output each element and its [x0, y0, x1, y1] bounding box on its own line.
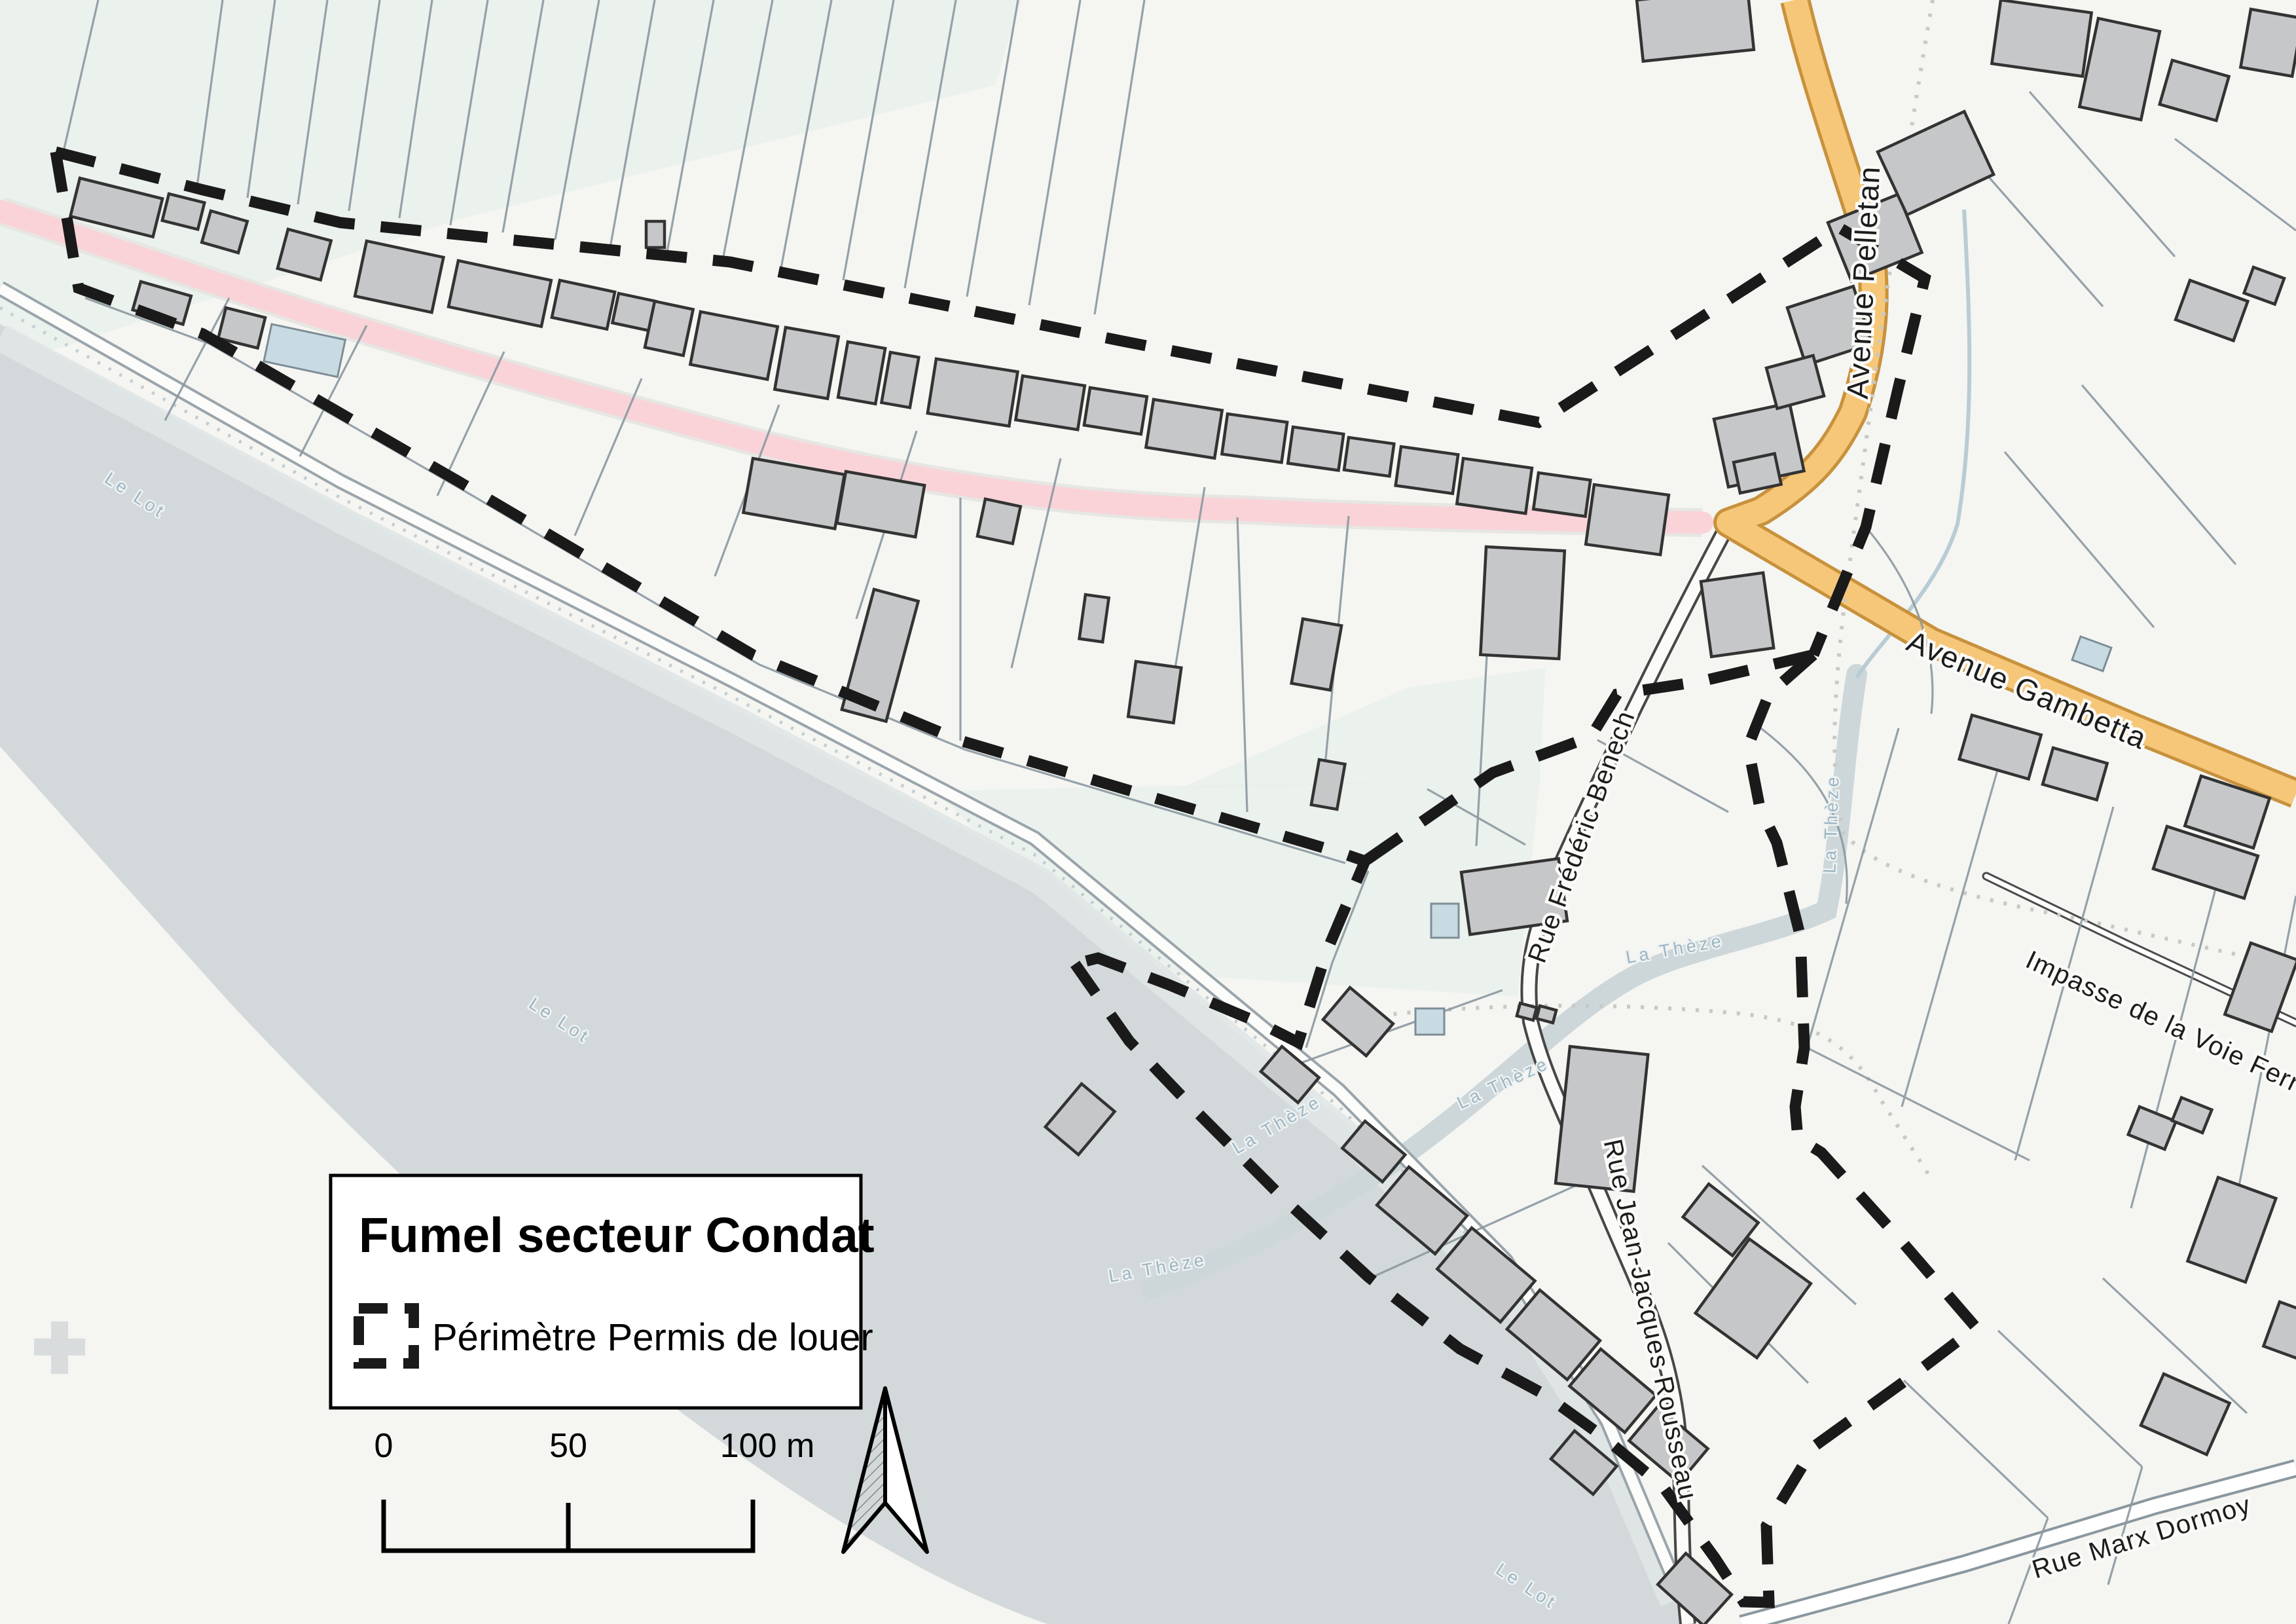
stream-label: La Thèze: [1819, 773, 1842, 874]
legend-item-label: Périmètre Permis de louer: [432, 1316, 873, 1359]
building: [1146, 399, 1222, 458]
building: [774, 327, 838, 399]
pool-building: [1431, 904, 1459, 938]
building: [1084, 388, 1147, 434]
building: [2240, 9, 2296, 77]
building: [1517, 1003, 1537, 1020]
map-svg: Le Lot Le Lot Le Lot Le Lot La Thèze La …: [0, 0, 2296, 1624]
building: [838, 342, 885, 404]
building: [1734, 454, 1781, 493]
legend-title: Fumel secteur Condat: [359, 1208, 875, 1263]
building: [1537, 1006, 1556, 1023]
legend: Fumel secteur Condat Périmètre Permis de…: [331, 1175, 875, 1408]
building: [1396, 447, 1458, 494]
building: [977, 499, 1021, 544]
building: [1222, 414, 1287, 462]
building: [1080, 595, 1109, 642]
building: [1480, 547, 1564, 659]
scalebar-100: 100 m: [720, 1427, 815, 1465]
building: [1586, 485, 1669, 555]
pool-building: [1415, 1008, 1444, 1035]
scalebar-50: 50: [549, 1427, 587, 1465]
building: [646, 221, 665, 248]
building: [1128, 661, 1181, 723]
scalebar-0: 0: [374, 1427, 393, 1465]
map-canvas: Le Lot Le Lot Le Lot Le Lot La Thèze La …: [0, 0, 2296, 1624]
building: [1533, 473, 1590, 517]
building: [928, 359, 1018, 426]
building: [1992, 0, 2091, 77]
building: [1637, 0, 1754, 61]
building: [1015, 376, 1084, 430]
building: [1457, 458, 1532, 513]
building: [645, 301, 693, 356]
building: [1288, 427, 1343, 470]
building: [1701, 573, 1774, 657]
building: [1556, 1046, 1648, 1191]
building: [1344, 437, 1394, 476]
